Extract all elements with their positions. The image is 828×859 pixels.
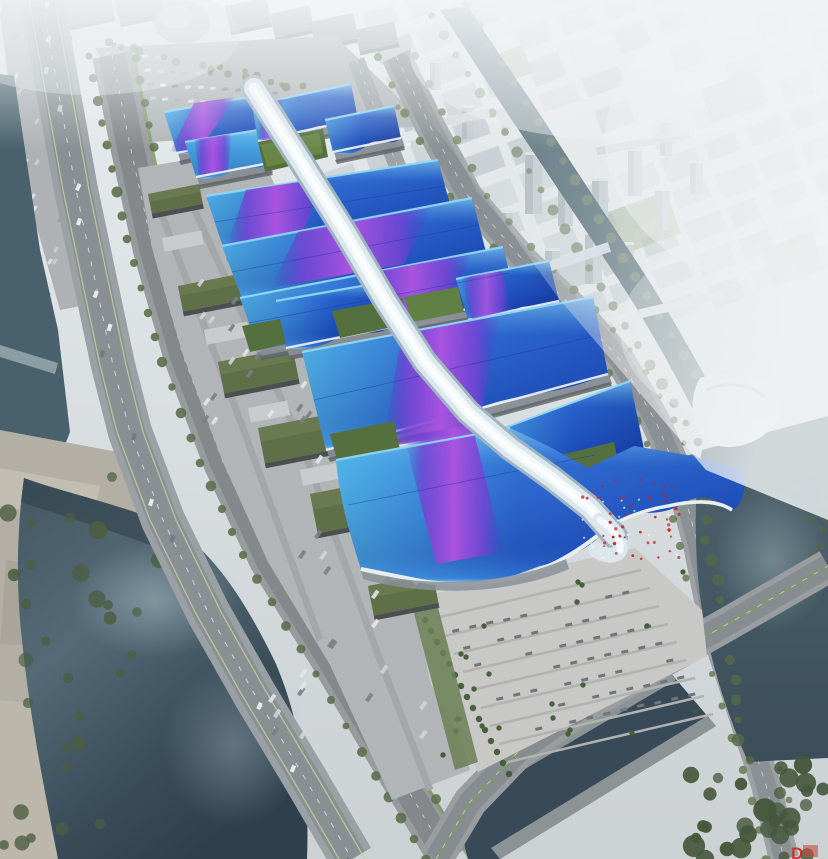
svg-text:D: D (791, 844, 803, 859)
